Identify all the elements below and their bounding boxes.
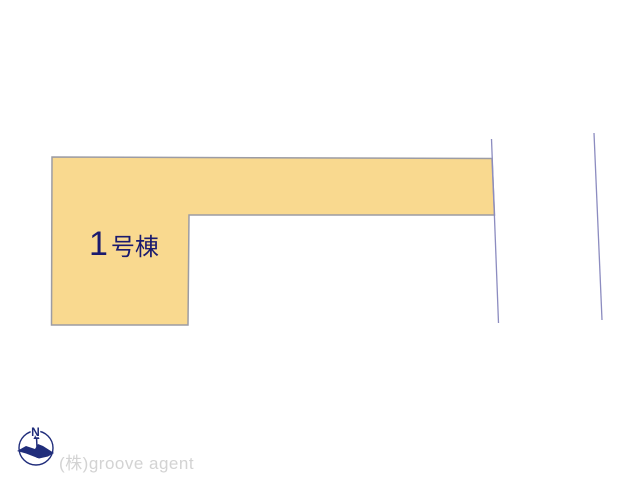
compass-icon: N xyxy=(12,423,60,471)
bird-silhouette xyxy=(17,444,54,459)
site-plan-canvas: 1 号棟 N (株)groove agent xyxy=(0,0,640,480)
building-number: 1 xyxy=(89,227,108,261)
boundary-line-1 xyxy=(492,139,499,323)
building-1-label: 1 号棟 xyxy=(89,227,159,261)
boundary-line-2 xyxy=(594,133,602,320)
company-watermark: (株)groove agent xyxy=(59,449,194,474)
north-label: N xyxy=(31,425,40,439)
building-suffix: 号棟 xyxy=(111,236,159,260)
